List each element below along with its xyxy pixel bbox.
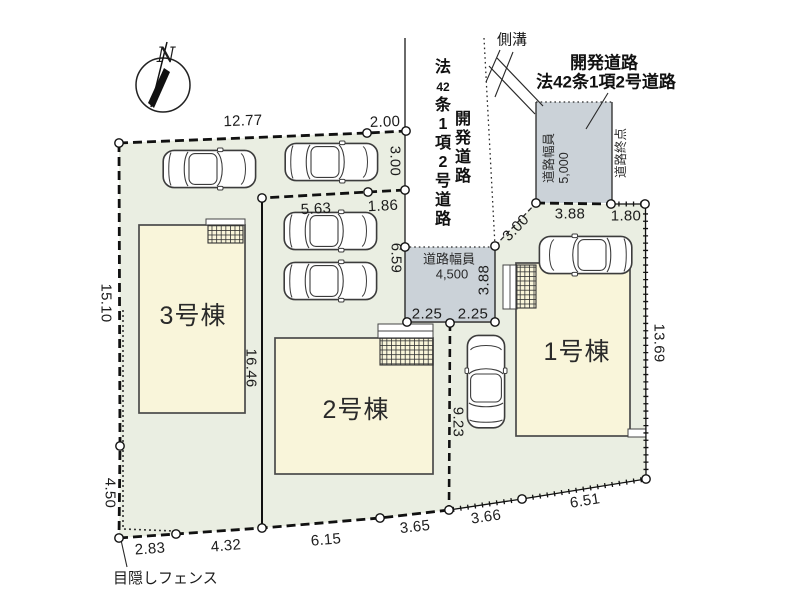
building-2-porch xyxy=(378,324,433,365)
west-road-width-value: 4,500 xyxy=(436,267,469,282)
dim-right-up: 3.00 xyxy=(387,146,404,176)
dim-top-right: 2.00 xyxy=(370,113,401,131)
dim-top-main: 12.77 xyxy=(223,112,263,130)
dim-lot1-top: 3.88 xyxy=(555,206,585,223)
dim-lot2-top-short: 1.86 xyxy=(367,197,398,216)
site-plan-page: N 3号棟 2号棟 1号棟 側溝 開発道路 法42条1項2号道路 法42条1項2… xyxy=(0,0,800,600)
corner-marker xyxy=(116,442,124,450)
corner-marker xyxy=(642,475,650,483)
car-lot1-a xyxy=(539,234,631,276)
privacy-fence-label: 目隠しフェンス xyxy=(113,570,218,587)
site-plan-drawing: N 3号棟 2号棟 1号棟 側溝 開発道路 法42条1項2号道路 法42条1項2… xyxy=(0,0,800,600)
building-1-porch xyxy=(503,265,536,309)
dim-bottom5: 3.66 xyxy=(470,506,502,527)
fence-leader xyxy=(121,540,127,567)
car-lot1-b xyxy=(465,335,507,427)
corner-marker xyxy=(115,534,123,542)
west-road-width-label: 道路幅員 xyxy=(423,252,475,267)
dim-lot2-top-long: 5.63 xyxy=(300,200,331,219)
corner-marker xyxy=(518,495,526,503)
dim-left-lower: 4.50 xyxy=(102,478,119,508)
car-lot2-b xyxy=(284,260,376,302)
dim-lot1-right: 13.69 xyxy=(651,323,668,362)
road-name-vertical-sub: 開発道路 xyxy=(454,110,472,185)
road-end-label: 道路終点 xyxy=(613,128,628,178)
dim-lot1-top-right: 1.80 xyxy=(611,208,641,225)
dim-divider-3-2: 16.46 xyxy=(243,348,260,387)
dim-corridor: 6.59 xyxy=(388,243,405,273)
car-lot3-b xyxy=(285,141,377,183)
dim-bottom6: 6.51 xyxy=(569,490,602,512)
building-3-label: 3号棟 xyxy=(160,302,227,330)
corner-marker xyxy=(115,139,123,147)
road-name-vertical-main: 法42条1項2号道路 xyxy=(434,57,452,228)
gutter-cross-band xyxy=(489,58,543,114)
side-ditch-leader xyxy=(486,50,513,97)
car-lot3-a xyxy=(163,148,255,190)
north-road-width-label: 道路幅員 xyxy=(541,133,556,184)
corner-marker xyxy=(258,194,266,202)
corner-marker xyxy=(364,188,372,196)
compass: N xyxy=(136,42,190,112)
dim-bottom1: 2.83 xyxy=(134,539,166,558)
building-2-label: 2号棟 xyxy=(323,396,390,424)
dim-road-side: 3.88 xyxy=(476,265,493,295)
corner-marker xyxy=(641,200,649,208)
dim-bottom4: 3.65 xyxy=(399,517,431,537)
corner-marker xyxy=(172,530,180,538)
dim-bottom2: 4.32 xyxy=(210,536,242,556)
north-road-width-value: 5,000 xyxy=(557,152,571,183)
dim-left-upper: 15.10 xyxy=(98,283,115,322)
dev-road-heading-line2: 法42条1項2号道路 xyxy=(536,72,677,92)
corner-marker xyxy=(532,199,540,207)
corner-marker xyxy=(445,506,453,514)
dim-divider-2-1: 9.23 xyxy=(450,407,467,437)
dev-road-heading-line1: 開発道路 xyxy=(570,53,639,73)
side-ditch-label: 側溝 xyxy=(497,32,527,49)
dim-bottom3: 6.15 xyxy=(310,530,342,550)
corner-marker xyxy=(258,524,266,532)
dim-west-road-a: 2.25 xyxy=(412,306,442,323)
corner-marker xyxy=(491,242,499,250)
corner-marker xyxy=(402,127,410,135)
corner-marker xyxy=(403,318,411,326)
corner-marker xyxy=(376,514,384,522)
corner-marker xyxy=(491,318,499,326)
compass-north-label: N xyxy=(156,43,176,67)
dim-west-road-b: 2.25 xyxy=(458,306,488,323)
building-3-porch xyxy=(206,219,245,243)
building-1-step xyxy=(628,429,646,437)
road-gutter-dotted xyxy=(484,38,495,246)
corner-marker xyxy=(401,186,409,194)
corner-marker xyxy=(446,319,454,327)
building-1-label: 1号棟 xyxy=(544,338,611,366)
